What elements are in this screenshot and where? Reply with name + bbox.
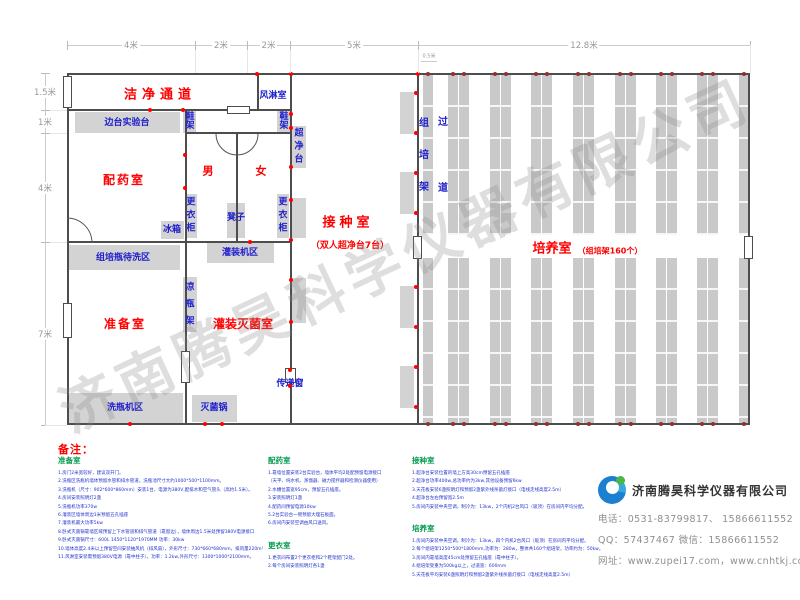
outlet-dot [203, 422, 207, 426]
outlet-dot [289, 198, 293, 202]
dim-tick [41, 242, 50, 243]
note-line: 5.洗瓶机功率370w [58, 504, 263, 512]
company-qq: QQ：57437467 微信：15866611552 [598, 532, 798, 546]
company-info: 济南腾昊科学仪器有限公司 电话：0531-83799817、 158666115… [598, 476, 798, 567]
outlet-dot [289, 320, 293, 324]
plan-label: 超净台 [294, 128, 303, 167]
note-line: 4.配药间预留电源10kw [268, 504, 408, 512]
note-line: 3.洗瓶机（尺寸：902*600*860mm）安装1台，电源为380V,配排水和… [58, 487, 263, 495]
plan-label: 组培架 [419, 108, 429, 204]
note-line: 2.每个房间安装照明灯各1盏 [268, 563, 408, 571]
outlet-dot [414, 131, 418, 135]
plan-label: 接种室 [322, 217, 373, 232]
note-line: 3.安装照明灯1盏 [268, 495, 408, 503]
outlet-dot [183, 186, 187, 190]
outlet-dot [248, 240, 252, 244]
dim-label-mini: 0.5米 [423, 53, 436, 60]
plan-label: 更衣柜 [278, 197, 287, 236]
note-line: 8.卧式灭菌锅靠墙区域预留上下水管道和排气管道（靠窗边），墙体周边1.5米处预留… [58, 529, 263, 537]
plan-label: 洁净通道 [124, 89, 196, 104]
notes-column: 配药室1.靠墙位置安装2台实验台，墙体平均2处配预留电源接口（天平、纯水机、蒸馏… [268, 455, 408, 583]
dim-tick [67, 41, 68, 50]
door-arc [216, 134, 258, 155]
dim-label: 4米 [122, 39, 140, 51]
dim-tick [247, 41, 248, 50]
plan-label: 边台实验台 [104, 118, 149, 128]
note-line: 1.房门2米宽较好，建议双开门。 [58, 470, 263, 478]
plan-label: 组培瓶待洗区 [96, 253, 150, 263]
outlet-dot [289, 112, 293, 116]
note-line: 6.灌装区墙体周边1米预留五孔插座 [58, 512, 263, 520]
outlet-dot [414, 91, 418, 95]
plan-label: 灌装灭菌室 [213, 318, 273, 332]
dim-tick [41, 133, 50, 134]
plan-label: 冰箱 [163, 225, 181, 235]
dim-tick [290, 41, 291, 50]
company-logo-icon [598, 476, 626, 504]
plan-label: 洗瓶机区 [107, 403, 143, 413]
dim-label: 5米 [345, 39, 363, 51]
plan-label: 鞋架 [185, 113, 194, 131]
dim-tick [41, 110, 50, 111]
outlet-dot [128, 422, 132, 426]
outlet-dot [414, 171, 418, 175]
dim-label: 7米 [36, 328, 54, 340]
note-line: 1.靠墙位置安装2台实验台，墙体平均2处配预留电源接口 [268, 470, 408, 478]
note-line: 9.卧式灭菌锅尺寸：600L 1450*1120*1970MM 功率：30kw [58, 537, 263, 545]
outlet-dot [288, 368, 292, 372]
dim-label: 2米 [212, 39, 230, 51]
dim-label: 1米 [36, 116, 54, 128]
outlet-dot [220, 422, 224, 426]
dim-label: 4米 [36, 182, 54, 194]
outlet-dot [288, 384, 292, 388]
plan-label: 凳子 [227, 213, 245, 223]
company-phone: 电话：0531-83799817、 15866611552 [598, 511, 798, 525]
door-arcs [0, 0, 800, 460]
company-website: 网址：www.zupei17.com，www.cnhtkj.com [598, 553, 798, 567]
outlet-dot [148, 108, 152, 112]
door-arc [67, 218, 92, 243]
company-header: 济南腾昊科学仪器有限公司 [598, 476, 798, 504]
outlet-dot [289, 238, 293, 242]
dim-line [421, 61, 437, 62]
outlet-dot [181, 108, 185, 112]
notes-column: 准备室1.房门2米宽较好，建议双开门。2.洗瓶区洗瓶机墙体预留水管和排水管道，洗… [58, 455, 263, 573]
notes-section-title: 更衣室 [268, 540, 408, 551]
plan-label: 过道 [438, 90, 448, 222]
note-line: 1.更衣间布置2个更衣柜和2个鞋架配门2处。 [268, 555, 408, 563]
outlet-dot [414, 405, 418, 409]
outlet-dot [289, 278, 293, 282]
outlet-dot [414, 365, 418, 369]
dim-tick [418, 41, 419, 50]
note-line: 2.洗瓶区洗瓶机墙体预留水管和排水管道，洗瓶池尺寸大约1000*500*1100… [58, 478, 263, 486]
outlet-dot [255, 72, 259, 76]
dim-tick [195, 41, 196, 50]
note-line: 11.风淋室安装需预留380V电源（靠中柱子）。功率：1.2kw,外形尺寸：13… [58, 554, 263, 562]
plan-label: 配药室 [103, 174, 145, 188]
outlet-dot [289, 165, 293, 169]
company-name: 济南腾昊科学仪器有限公司 [632, 482, 788, 499]
plan-label: 准备室 [104, 318, 146, 332]
plan-label: （组培架160个） [578, 246, 643, 255]
dim-tick [41, 73, 50, 74]
dim-label: 1.5米 [32, 86, 58, 98]
note-line: （天平、纯水机、蒸馏器、磁力搅拌器和检测仪器使用） [268, 478, 408, 486]
dim-label: 12.8米 [568, 39, 599, 51]
notes-section: 配药室1.靠墙位置安装2台实验台，墙体平均2处配预留电源接口（天平、纯水机、蒸馏… [268, 455, 408, 529]
outlet-dot [183, 153, 187, 157]
floor-plan-page: 洁净通道风淋室边台实验台鞋架鞋架超净台配药室男女更衣柜凳子更衣柜冰箱组培瓶待洗区… [0, 0, 800, 600]
note-line: 5.2台实验台一侧预留大理石板面。 [268, 512, 408, 520]
note-line: 5.天花板平均安装6盏照明灯和预留2盏紫外线杀菌灯接口（电线走线高度2.5m） [412, 572, 767, 580]
plan-label: 灌装机区 [222, 248, 258, 258]
note-line: 7.灌装机最大功率5kw [58, 520, 263, 528]
plan-label: 灭菌锅 [200, 403, 227, 413]
plan-label: 培养室 [532, 243, 571, 258]
floor-plan: 洁净通道风淋室边台实验台鞋架鞋架超净台配药室男女更衣柜凳子更衣柜冰箱组培瓶待洗区… [0, 0, 800, 460]
notes-footer: 备注： 准备室1.房门2米宽较好，建议双开门。2.洗瓶区洗瓶机墙体预留水管和排水… [0, 440, 800, 600]
outlet-dot [289, 126, 293, 130]
note-line: 10.墙体高度2.4米以上预留空间安装抽风机（排风扇），外形尺寸：730*660… [58, 546, 263, 554]
plan-label: 凉瓶架 [185, 280, 194, 331]
notes-section-title: 准备室 [58, 455, 263, 466]
note-line: 2.水槽位置宽95cm，预留五孔插座。 [268, 487, 408, 495]
plan-label: 风淋室 [259, 91, 286, 101]
plan-label: 鞋架 [279, 113, 288, 131]
notes-section-title: 配药室 [268, 455, 408, 466]
dim-guide [750, 45, 751, 73]
notes-section: 准备室1.房门2米宽较好，建议双开门。2.洗瓶区洗瓶机墙体预留水管和排水管道，洗… [58, 455, 263, 562]
plan-label: （双人超净台7台） [311, 241, 389, 251]
notes-section: 更衣室1.更衣间布置2个更衣柜和2个鞋架配门2处。2.每个房间安装照明灯各1盏 [268, 540, 408, 572]
note-line: 6.房间内安装空调由风口送风。 [268, 520, 408, 528]
outlet-dot [414, 285, 418, 289]
outlet-dot [414, 211, 418, 215]
plan-label: 更衣柜 [186, 197, 195, 236]
notes-section-title: 接种室 [412, 455, 767, 466]
dim-label: 2米 [260, 39, 278, 51]
plan-label: 男 [203, 166, 214, 179]
plan-label: 女 [256, 166, 267, 179]
note-line: 4.房间安装照明灯2盏 [58, 495, 263, 503]
outlet-dot [414, 325, 418, 329]
dim-guide [45, 425, 67, 426]
